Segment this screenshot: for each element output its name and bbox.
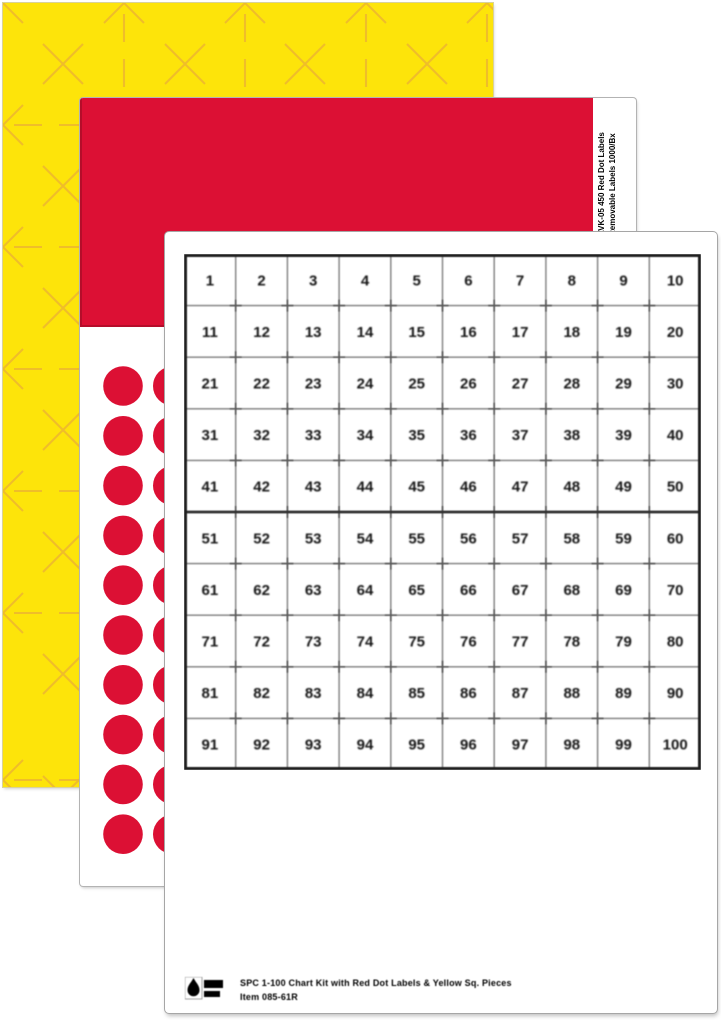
- svg-text:62: 62: [253, 582, 270, 599]
- svg-text:18: 18: [563, 324, 580, 341]
- svg-text:99: 99: [615, 737, 632, 754]
- svg-text:52: 52: [253, 530, 270, 547]
- svg-text:68: 68: [563, 582, 580, 599]
- svg-text:65: 65: [408, 582, 425, 599]
- svg-text:57: 57: [512, 530, 529, 547]
- svg-text:95: 95: [408, 737, 425, 754]
- svg-text:49: 49: [615, 479, 632, 496]
- svg-text:92: 92: [253, 737, 270, 754]
- svg-text:98: 98: [563, 737, 580, 754]
- svg-text:34: 34: [357, 427, 374, 444]
- svg-text:46: 46: [460, 479, 477, 496]
- svg-text:14: 14: [357, 324, 374, 341]
- svg-text:89: 89: [615, 685, 632, 702]
- svg-text:72: 72: [253, 634, 270, 651]
- svg-text:90: 90: [667, 685, 684, 702]
- svg-text:32: 32: [253, 427, 270, 444]
- svg-text:94: 94: [357, 737, 374, 754]
- svg-text:61: 61: [202, 582, 219, 599]
- svg-text:84: 84: [357, 685, 374, 702]
- svg-text:58: 58: [563, 530, 580, 547]
- svg-text:23: 23: [305, 376, 322, 393]
- svg-text:69: 69: [615, 582, 632, 599]
- svg-text:48: 48: [563, 479, 580, 496]
- svg-text:38: 38: [563, 427, 580, 444]
- svg-text:66: 66: [460, 582, 477, 599]
- svg-text:64: 64: [357, 582, 374, 599]
- svg-text:12: 12: [253, 324, 270, 341]
- svg-text:47: 47: [512, 479, 529, 496]
- svg-text:74: 74: [357, 634, 374, 651]
- svg-text:39: 39: [615, 427, 632, 444]
- svg-text:21: 21: [202, 376, 219, 393]
- svg-text:2: 2: [257, 272, 265, 289]
- svg-text:25: 25: [408, 376, 425, 393]
- svg-text:8: 8: [568, 272, 576, 289]
- svg-text:79: 79: [615, 634, 632, 651]
- svg-text:67: 67: [512, 582, 529, 599]
- svg-text:6: 6: [464, 272, 472, 289]
- svg-text:33: 33: [305, 427, 322, 444]
- svg-text:41: 41: [202, 479, 219, 496]
- svg-text:54: 54: [357, 530, 374, 547]
- svg-text:91: 91: [202, 737, 219, 754]
- svg-text:50: 50: [667, 479, 684, 496]
- svg-text:5: 5: [413, 272, 421, 289]
- svg-text:13: 13: [305, 324, 322, 341]
- svg-text:93: 93: [305, 737, 322, 754]
- svg-text:88: 88: [563, 685, 580, 702]
- svg-text:75: 75: [408, 634, 425, 651]
- svg-text:37: 37: [512, 427, 529, 444]
- svg-text:100: 100: [663, 737, 688, 754]
- svg-text:55: 55: [408, 530, 425, 547]
- svg-text:70: 70: [667, 582, 684, 599]
- svg-text:36: 36: [460, 427, 477, 444]
- svg-text:80: 80: [667, 634, 684, 651]
- svg-text:27: 27: [512, 376, 529, 393]
- svg-text:10: 10: [667, 272, 684, 289]
- svg-text:40: 40: [667, 427, 684, 444]
- svg-text:76: 76: [460, 634, 477, 651]
- svg-text:60: 60: [667, 530, 684, 547]
- svg-text:26: 26: [460, 376, 477, 393]
- svg-text:97: 97: [512, 737, 529, 754]
- svg-text:53: 53: [305, 530, 322, 547]
- svg-text:24: 24: [357, 376, 374, 393]
- svg-text:29: 29: [615, 376, 632, 393]
- svg-text:87: 87: [512, 685, 529, 702]
- svg-text:3: 3: [309, 272, 317, 289]
- svg-text:86: 86: [460, 685, 477, 702]
- svg-text:73: 73: [305, 634, 322, 651]
- svg-text:63: 63: [305, 582, 322, 599]
- svg-text:15: 15: [408, 324, 425, 341]
- svg-text:56: 56: [460, 530, 477, 547]
- svg-text:78: 78: [563, 634, 580, 651]
- svg-text:77: 77: [512, 634, 529, 651]
- svg-text:4: 4: [361, 272, 370, 289]
- svg-text:28: 28: [563, 376, 580, 393]
- svg-text:20: 20: [667, 324, 684, 341]
- svg-text:59: 59: [615, 530, 632, 547]
- svg-text:1: 1: [206, 272, 214, 289]
- svg-text:11: 11: [202, 324, 218, 341]
- svg-text:82: 82: [253, 685, 270, 702]
- svg-text:16: 16: [460, 324, 477, 341]
- svg-text:85: 85: [408, 685, 425, 702]
- svg-text:83: 83: [305, 685, 322, 702]
- svg-text:45: 45: [408, 479, 425, 496]
- svg-text:71: 71: [202, 634, 219, 651]
- svg-text:96: 96: [460, 737, 477, 754]
- svg-text:44: 44: [357, 479, 374, 496]
- svg-text:30: 30: [667, 376, 684, 393]
- svg-text:43: 43: [305, 479, 322, 496]
- svg-text:81: 81: [202, 685, 219, 702]
- svg-text:17: 17: [512, 324, 529, 341]
- svg-text:7: 7: [516, 272, 524, 289]
- svg-text:51: 51: [202, 530, 219, 547]
- svg-text:42: 42: [253, 479, 270, 496]
- svg-text:19: 19: [615, 324, 632, 341]
- svg-text:35: 35: [408, 427, 425, 444]
- svg-text:31: 31: [202, 427, 219, 444]
- svg-text:22: 22: [253, 376, 270, 393]
- svg-text:9: 9: [619, 272, 627, 289]
